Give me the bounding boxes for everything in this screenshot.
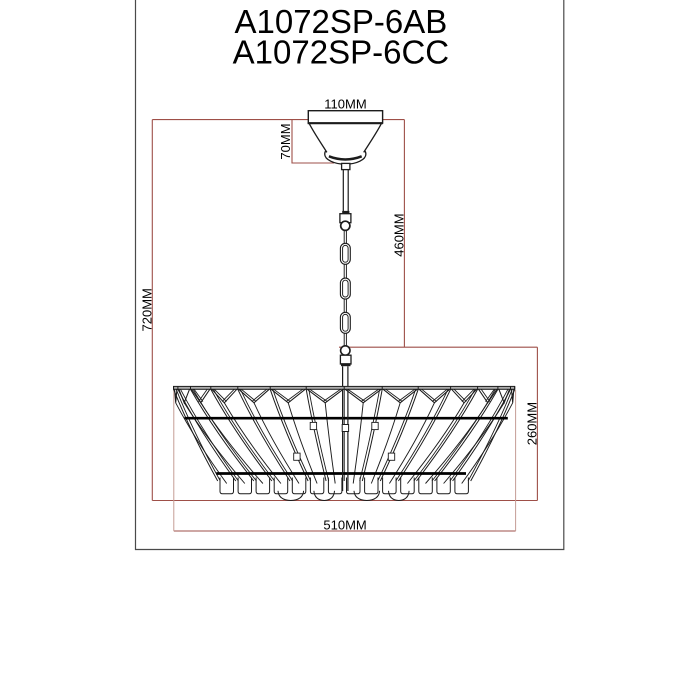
svg-text:460MM: 460MM xyxy=(391,213,406,256)
svg-text:A1072SP-6CC: A1072SP-6CC xyxy=(233,34,449,71)
svg-text:110MM: 110MM xyxy=(324,97,366,112)
svg-text:260MM: 260MM xyxy=(525,402,540,445)
svg-text:510MM: 510MM xyxy=(323,518,366,533)
svg-text:70MM: 70MM xyxy=(278,123,293,159)
svg-text:720MM: 720MM xyxy=(139,288,154,331)
